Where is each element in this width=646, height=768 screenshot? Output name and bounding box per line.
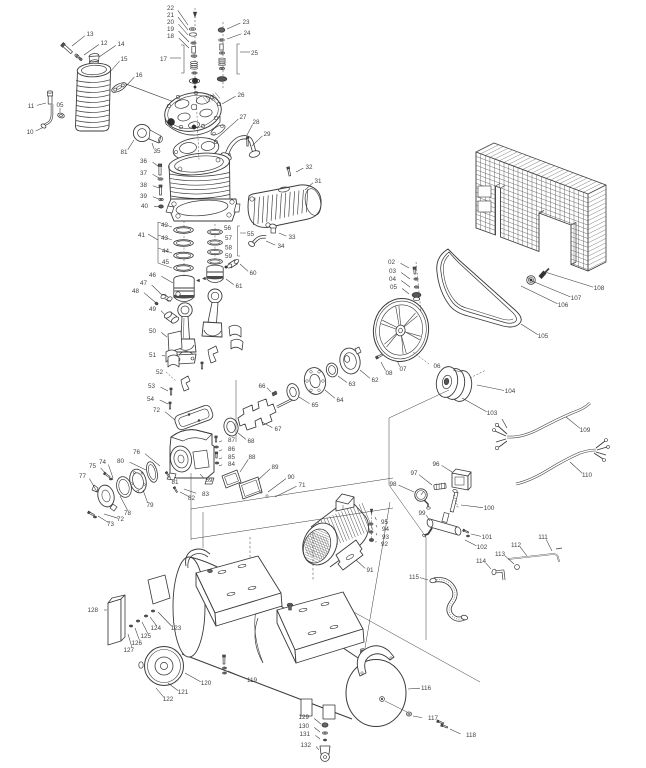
svg-text:05: 05: [56, 102, 64, 109]
svg-text:36: 36: [140, 158, 148, 165]
svg-text:103: 103: [487, 410, 498, 417]
svg-text:35: 35: [153, 148, 161, 155]
svg-text:122: 122: [163, 696, 174, 703]
svg-text:45: 45: [162, 259, 170, 266]
svg-text:16: 16: [135, 72, 143, 79]
svg-text:77: 77: [79, 473, 87, 480]
svg-text:125: 125: [140, 633, 151, 640]
svg-text:93: 93: [382, 534, 390, 541]
svg-text:118: 118: [466, 732, 477, 739]
svg-text:96: 96: [432, 461, 440, 468]
svg-text:27: 27: [239, 114, 247, 121]
svg-text:66: 66: [258, 383, 266, 390]
svg-text:114: 114: [476, 558, 487, 565]
svg-text:116: 116: [421, 685, 432, 692]
svg-text:81: 81: [120, 149, 128, 156]
svg-text:22: 22: [167, 5, 175, 12]
svg-text:32: 32: [305, 164, 313, 171]
svg-text:08: 08: [385, 370, 393, 377]
svg-text:83: 83: [202, 491, 210, 498]
svg-text:91: 91: [366, 567, 374, 574]
svg-text:131: 131: [299, 731, 310, 738]
svg-text:48: 48: [132, 288, 140, 295]
svg-text:15: 15: [120, 56, 128, 63]
svg-text:97: 97: [410, 470, 418, 477]
svg-text:65: 65: [311, 402, 319, 409]
svg-text:80: 80: [117, 458, 125, 465]
svg-text:121: 121: [178, 689, 189, 696]
svg-text:04: 04: [389, 276, 397, 283]
svg-text:87: 87: [228, 437, 236, 444]
svg-text:102: 102: [477, 544, 488, 551]
svg-text:26: 26: [237, 92, 245, 99]
svg-text:119: 119: [247, 677, 258, 684]
svg-text:12: 12: [100, 40, 108, 47]
svg-text:46: 46: [149, 272, 157, 279]
svg-text:37: 37: [140, 170, 148, 177]
svg-text:47: 47: [140, 280, 148, 287]
svg-text:115: 115: [409, 574, 420, 581]
svg-text:76: 76: [133, 449, 141, 456]
svg-text:28: 28: [252, 119, 260, 126]
svg-text:132: 132: [300, 742, 311, 749]
svg-text:101: 101: [482, 534, 493, 541]
svg-text:100: 100: [484, 505, 495, 512]
svg-text:109: 109: [580, 427, 591, 434]
svg-text:105: 105: [538, 333, 549, 340]
svg-text:110: 110: [582, 472, 593, 479]
svg-text:18: 18: [167, 33, 175, 40]
svg-text:25: 25: [251, 50, 259, 57]
svg-text:40: 40: [141, 203, 149, 210]
svg-text:50: 50: [149, 328, 157, 335]
svg-text:113: 113: [495, 551, 506, 558]
svg-text:33: 33: [288, 234, 296, 241]
svg-text:106: 106: [558, 302, 569, 309]
svg-text:104: 104: [505, 388, 516, 395]
svg-text:11: 11: [28, 103, 35, 110]
svg-text:81: 81: [171, 479, 179, 486]
svg-text:78: 78: [124, 510, 132, 517]
svg-text:99: 99: [418, 510, 426, 517]
svg-text:67: 67: [274, 426, 282, 433]
svg-text:49: 49: [149, 306, 157, 313]
svg-text:14: 14: [117, 41, 125, 48]
svg-text:20: 20: [167, 19, 175, 26]
svg-text:79: 79: [146, 502, 154, 509]
svg-text:72: 72: [117, 516, 125, 523]
svg-text:17: 17: [160, 56, 168, 63]
svg-text:71: 71: [298, 482, 306, 489]
svg-text:39: 39: [140, 193, 148, 200]
svg-text:54: 54: [147, 396, 155, 403]
svg-text:85: 85: [228, 454, 236, 461]
svg-text:123: 123: [171, 625, 182, 632]
svg-text:88: 88: [248, 454, 256, 461]
svg-text:57: 57: [225, 235, 233, 242]
svg-text:21: 21: [167, 12, 175, 19]
svg-text:107: 107: [571, 295, 582, 302]
svg-text:89: 89: [271, 464, 279, 471]
svg-text:44: 44: [162, 248, 170, 255]
svg-text:68: 68: [247, 438, 255, 445]
svg-text:60: 60: [249, 270, 257, 277]
svg-text:51: 51: [149, 352, 157, 359]
svg-text:52: 52: [156, 369, 164, 376]
svg-text:55: 55: [247, 231, 255, 238]
svg-text:41: 41: [138, 232, 146, 239]
svg-text:124: 124: [150, 625, 161, 632]
svg-text:59: 59: [225, 253, 233, 260]
svg-text:126: 126: [131, 640, 142, 647]
svg-text:29: 29: [263, 131, 271, 138]
svg-text:38: 38: [140, 182, 148, 189]
svg-text:64: 64: [336, 397, 344, 404]
svg-text:86: 86: [228, 446, 236, 453]
svg-text:34: 34: [277, 243, 285, 250]
svg-text:63: 63: [348, 381, 356, 388]
svg-text:24: 24: [243, 30, 251, 37]
svg-text:72: 72: [153, 407, 161, 414]
svg-text:53: 53: [148, 383, 156, 390]
svg-text:130: 130: [298, 723, 309, 730]
svg-text:74: 74: [99, 459, 107, 466]
svg-text:82: 82: [188, 495, 196, 502]
svg-text:111: 111: [538, 534, 548, 541]
svg-text:112: 112: [511, 542, 522, 549]
svg-text:19: 19: [167, 26, 175, 33]
svg-text:23: 23: [242, 19, 250, 26]
svg-text:128: 128: [87, 607, 98, 614]
svg-text:13: 13: [86, 31, 94, 38]
svg-text:02: 02: [388, 259, 396, 266]
svg-text:62: 62: [371, 377, 379, 384]
svg-text:75: 75: [89, 463, 97, 470]
svg-text:43: 43: [161, 235, 169, 242]
svg-text:42: 42: [161, 222, 169, 229]
svg-text:56: 56: [224, 225, 232, 232]
svg-text:84: 84: [228, 461, 236, 468]
svg-text:69: 69: [205, 477, 213, 484]
svg-text:129: 129: [298, 714, 309, 721]
svg-text:95: 95: [381, 519, 389, 526]
svg-text:120: 120: [201, 680, 212, 687]
svg-text:108: 108: [594, 285, 605, 292]
svg-text:05: 05: [390, 284, 398, 291]
svg-text:07: 07: [399, 366, 407, 373]
svg-text:58: 58: [225, 245, 233, 252]
svg-text:73: 73: [107, 521, 115, 528]
svg-text:127: 127: [123, 647, 134, 654]
svg-text:61: 61: [235, 283, 243, 290]
svg-text:10: 10: [26, 129, 34, 136]
svg-text:03: 03: [389, 268, 397, 275]
svg-text:06: 06: [433, 363, 441, 370]
svg-text:31: 31: [314, 178, 322, 185]
svg-text:90: 90: [287, 474, 295, 481]
